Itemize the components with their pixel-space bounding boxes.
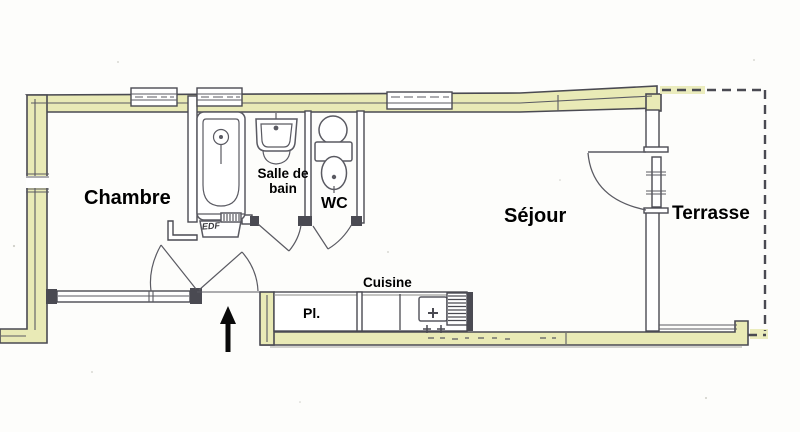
label-edf: EDF bbox=[202, 221, 221, 232]
vent-grille-icon bbox=[221, 213, 241, 222]
counter-divider bbox=[357, 292, 362, 331]
floorplan-canvas: Chambre Salle de bain WC Séjour Terrasse… bbox=[0, 0, 800, 432]
room-label-terrasse: Terrasse bbox=[672, 204, 750, 225]
window-chambre-right-icon bbox=[197, 88, 242, 106]
cooktop-hatch-icon bbox=[447, 293, 467, 325]
wall-chambre-south bbox=[57, 291, 190, 302]
wall-wc-right bbox=[357, 111, 364, 223]
wall-sejour-terrace-lower bbox=[646, 210, 659, 331]
window-sejour-icon bbox=[387, 92, 452, 109]
area-label-placard: Pl. bbox=[303, 306, 320, 321]
terrace-door-sill bbox=[644, 208, 668, 213]
window-chambre-left-icon bbox=[131, 88, 177, 106]
room-label-salle-de-bain: Salle de bain bbox=[251, 166, 315, 196]
area-label-cuisine: Cuisine bbox=[363, 276, 412, 291]
bathtub-icon bbox=[197, 112, 245, 220]
room-label-chambre: Chambre bbox=[84, 187, 171, 209]
terrace-door-head bbox=[644, 147, 668, 152]
counter-end-cap bbox=[467, 292, 473, 331]
room-label-wc: WC bbox=[321, 195, 348, 213]
wall-sejour-terrace-upper bbox=[646, 110, 659, 151]
room-label-sejour: Séjour bbox=[504, 205, 566, 227]
wall-chambre-bath bbox=[188, 96, 197, 222]
left-wall-notch bbox=[26, 174, 49, 192]
